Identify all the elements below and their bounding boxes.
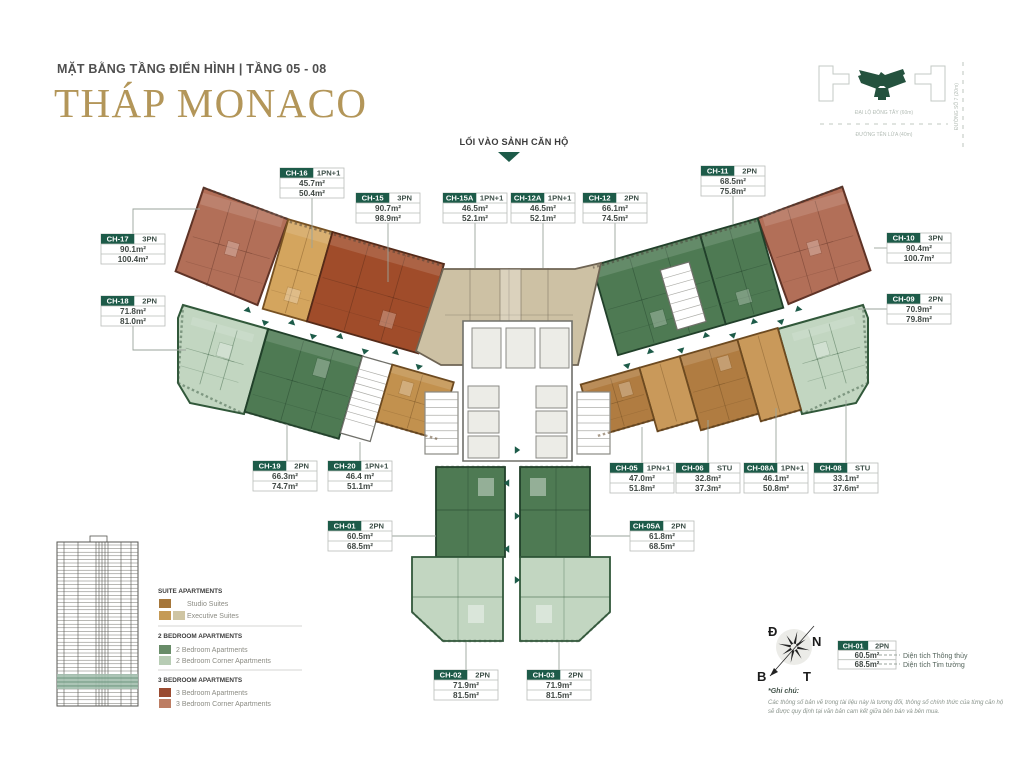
svg-text:71.9m²: 71.9m² [546,681,572,690]
svg-text:CH-15: CH-15 [362,194,385,203]
svg-text:2PN: 2PN [875,641,889,650]
svg-text:51.1m²: 51.1m² [347,482,373,491]
svg-text:51.8m²: 51.8m² [629,484,655,493]
svg-text:Diện tích Tim tường: Diện tích Tim tường [903,662,965,669]
svg-text:2PN: 2PN [294,462,309,471]
svg-text:Studio Suites: Studio Suites [187,601,229,608]
svg-text:90.1m²: 90.1m² [120,245,146,254]
svg-text:CH-18: CH-18 [107,297,129,306]
svg-text:3PN: 3PN [928,234,943,243]
svg-text:70.9m²: 70.9m² [906,305,932,314]
svg-text:CH-10: CH-10 [893,234,915,243]
svg-text:ĐƯỜNG TÊN LỬA (40m): ĐƯỜNG TÊN LỬA (40m) [856,130,913,138]
svg-text:50.4m²: 50.4m² [299,189,325,198]
svg-text:60.5m²: 60.5m² [347,532,373,541]
svg-text:CH-11: CH-11 [707,167,729,176]
svg-text:CH-12: CH-12 [589,194,611,203]
svg-text:46.5m²: 46.5m² [530,204,556,213]
svg-text:T: T [803,669,811,684]
svg-text:CH-20: CH-20 [334,462,356,471]
svg-text:52.1m²: 52.1m² [530,214,556,223]
svg-text:61.8m²: 61.8m² [649,532,675,541]
svg-text:46.5m²: 46.5m² [462,204,488,213]
svg-text:CH-05: CH-05 [616,464,639,473]
svg-text:Executive Suites: Executive Suites [187,613,239,620]
svg-text:CH-12A: CH-12A [514,194,542,203]
svg-text:2 Bedroom Apartments: 2 Bedroom Apartments [176,647,248,654]
svg-text:98.9m²: 98.9m² [375,214,401,223]
svg-text:2PN: 2PN [568,671,583,680]
svg-text:68.5m²: 68.5m² [649,542,675,551]
svg-text:sẽ được quy định tại văn bản c: sẽ được quy định tại văn bản cam kết giữ… [768,708,939,715]
svg-text:68.5m²: 68.5m² [720,177,746,186]
svg-text:2PN: 2PN [142,297,157,306]
svg-text:CH-02: CH-02 [440,671,462,680]
svg-text:50.8m²: 50.8m² [763,484,789,493]
svg-text:Đ: Đ [768,624,777,639]
svg-text:2 BEDROOM APARTMENTS: 2 BEDROOM APARTMENTS [158,633,243,640]
svg-text:71.8m²: 71.8m² [120,307,146,316]
svg-text:81.0m²: 81.0m² [120,317,146,326]
svg-text:2PN: 2PN [928,295,943,304]
svg-text:SUITE APARTMENTS: SUITE APARTMENTS [158,588,223,595]
svg-text:74.5m²: 74.5m² [602,214,628,223]
svg-text:STU: STU [717,464,733,473]
svg-text:46.1m²: 46.1m² [763,474,789,483]
svg-text:75.8m²: 75.8m² [720,187,746,196]
svg-text:68.5m²: 68.5m² [855,660,880,669]
svg-text:Diện tích Thông thủy: Diện tích Thông thủy [903,652,968,660]
svg-text:46.4 m²: 46.4 m² [346,472,374,481]
svg-text:CH-08A: CH-08A [747,464,775,473]
svg-text:ĐƯỜNG SỐ 7 (20m): ĐƯỜNG SỐ 7 (20m) [953,83,960,130]
svg-text:1PN+1: 1PN+1 [317,169,341,178]
svg-text:32.8m²: 32.8m² [695,474,721,483]
svg-text:3PN: 3PN [397,194,412,203]
svg-text:79.8m²: 79.8m² [906,315,932,324]
svg-text:CH-09: CH-09 [893,295,915,304]
svg-text:81.5m²: 81.5m² [453,691,479,700]
svg-text:100.7m²: 100.7m² [904,254,935,263]
svg-text:1PN+1: 1PN+1 [365,462,389,471]
svg-text:52.1m²: 52.1m² [462,214,488,223]
svg-text:CH-17: CH-17 [107,235,129,244]
svg-text:THÁP MONACO: THÁP MONACO [54,80,367,126]
svg-text:90.7m²: 90.7m² [375,204,401,213]
svg-text:3PN: 3PN [142,235,157,244]
svg-text:STU: STU [855,464,871,473]
svg-text:1PN+1: 1PN+1 [647,464,671,473]
svg-text:N: N [812,634,821,649]
svg-text:CH-01: CH-01 [843,641,864,650]
svg-text:60.5m²: 60.5m² [855,651,880,660]
svg-text:90.4m²: 90.4m² [906,244,932,253]
svg-text:CH-08: CH-08 [820,464,842,473]
svg-text:CH-01: CH-01 [334,522,357,531]
svg-text:66.1m²: 66.1m² [602,204,628,213]
svg-text:81.5m²: 81.5m² [546,691,572,700]
svg-text:47.0m²: 47.0m² [629,474,655,483]
svg-text:*Ghi chú:: *Ghi chú: [768,688,799,695]
svg-text:33.1m²: 33.1m² [833,474,859,483]
svg-text:2PN: 2PN [369,522,384,531]
svg-text:Các thông số bản vẽ trong tài: Các thông số bản vẽ trong tài liệu này l… [768,699,1004,706]
svg-text:CH-15A: CH-15A [446,194,474,203]
svg-text:100.4m²: 100.4m² [118,255,149,264]
svg-text:37.3m²: 37.3m² [695,484,721,493]
svg-text:CH-06: CH-06 [682,464,704,473]
svg-text:2PN: 2PN [624,194,639,203]
svg-text:MẶT BẰNG TẦNG ĐIỂN HÌNH | TẦNG: MẶT BẰNG TẦNG ĐIỂN HÌNH | TẦNG 05 - 08 [57,61,326,76]
svg-text:3 Bedroom Corner Apartments: 3 Bedroom Corner Apartments [176,701,271,708]
svg-text:1PN+1: 1PN+1 [480,194,504,203]
svg-text:2PN: 2PN [671,522,686,531]
svg-text:45.7m²: 45.7m² [299,179,325,188]
svg-text:74.7m²: 74.7m² [272,482,298,491]
svg-text:2PN: 2PN [475,671,490,680]
svg-text:1PN+1: 1PN+1 [548,194,572,203]
svg-text:CH-16: CH-16 [286,169,308,178]
svg-text:CH-03: CH-03 [533,671,555,680]
svg-text:66.3m²: 66.3m² [272,472,298,481]
svg-text:1PN+1: 1PN+1 [781,464,805,473]
svg-text:CH-05A: CH-05A [633,522,661,531]
svg-text:37.6m²: 37.6m² [833,484,859,493]
svg-text:CH-19: CH-19 [259,462,281,471]
svg-text:3 Bedroom Apartments: 3 Bedroom Apartments [176,690,248,697]
svg-text:68.5m²: 68.5m² [347,542,373,551]
svg-text:B: B [757,669,766,684]
svg-text:3 BEDROOM APARTMENTS: 3 BEDROOM APARTMENTS [158,677,243,684]
svg-text:2 Bedroom Corner Apartments: 2 Bedroom Corner Apartments [176,658,271,665]
svg-text:71.9m²: 71.9m² [453,681,479,690]
svg-text:LỐI VÀO SẢNH CĂN HỘ: LỐI VÀO SẢNH CĂN HỘ [460,136,569,147]
svg-text:ĐẠI LỘ ĐÔNG TÂY (60m): ĐẠI LỘ ĐÔNG TÂY (60m) [855,109,913,116]
svg-text:2PN: 2PN [742,167,757,176]
